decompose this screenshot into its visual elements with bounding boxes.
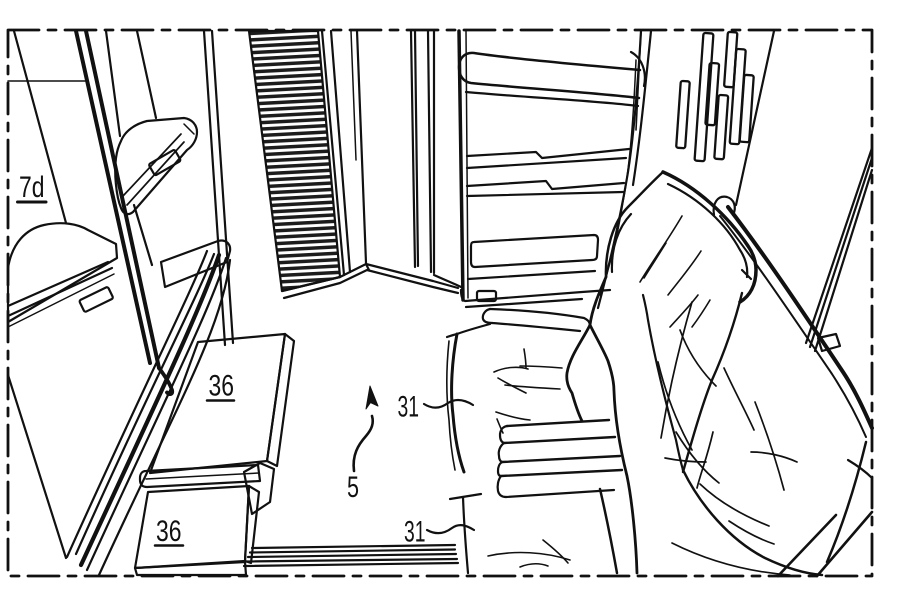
svg-text:31: 31 [398, 390, 420, 423]
svg-text:5: 5 [347, 471, 359, 504]
svg-text:36: 36 [156, 515, 182, 548]
svg-text:36: 36 [209, 370, 235, 403]
svg-text:7d: 7d [19, 171, 45, 204]
svg-text:31: 31 [404, 516, 426, 549]
